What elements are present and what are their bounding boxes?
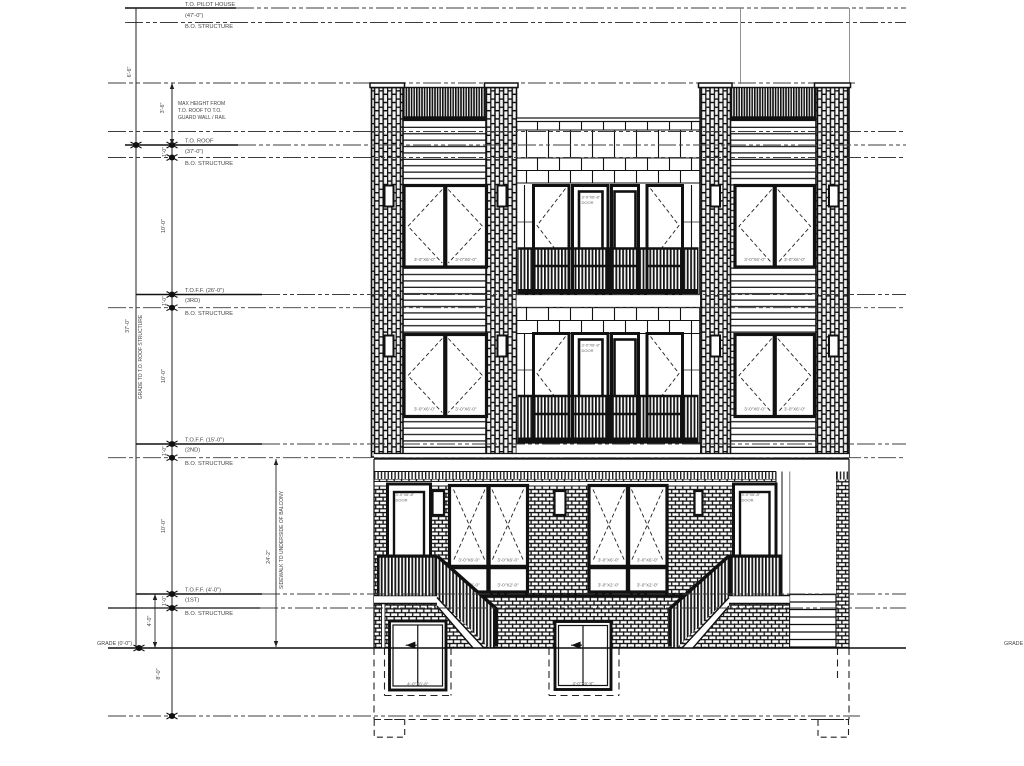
svg-text:10'-0": 10'-0": [161, 519, 167, 533]
svg-text:GUARD WALL / RAIL: GUARD WALL / RAIL: [178, 115, 226, 121]
svg-text:4'-0"X6'-8": 4'-0"X6'-8": [407, 682, 429, 687]
svg-text:DOOR: DOOR: [582, 200, 594, 205]
svg-text:3'-0"X6'-8": 3'-0"X6'-8": [742, 492, 761, 497]
svg-text:(2ND): (2ND): [185, 448, 200, 454]
svg-text:1'-0": 1'-0": [162, 296, 168, 306]
svg-text:GRADE (0'-0"): GRADE (0'-0"): [1004, 641, 1024, 647]
svg-text:3'-0"X6'-0": 3'-0"X6'-0": [744, 407, 766, 412]
svg-text:8'-0": 8'-0": [156, 668, 162, 679]
svg-text:T.O.F.F. (4'-0"): T.O.F.F. (4'-0"): [185, 588, 221, 594]
svg-text:3'-0"X2'-0": 3'-0"X2'-0": [598, 583, 620, 588]
svg-text:MAX HEIGHT FROM: MAX HEIGHT FROM: [178, 101, 225, 107]
svg-text:3'-0"X6'-0": 3'-0"X6'-0": [598, 558, 620, 563]
svg-text:6'-6": 6'-6": [127, 67, 133, 78]
svg-text:SIDEWALK TO UNDERSIDE OF BALCO: SIDEWALK TO UNDERSIDE OF BALCONY: [279, 490, 285, 589]
svg-text:3'-0"X6'-8": 3'-0"X6'-8": [396, 492, 415, 497]
svg-text:3'-0"X6'-0": 3'-0"X6'-0": [455, 407, 477, 412]
svg-text:GRADE TO T.O. ROOF STRUCTURE: GRADE TO T.O. ROOF STRUCTURE: [138, 314, 144, 399]
svg-text:3'-0"X6'-0": 3'-0"X6'-0": [455, 257, 477, 262]
svg-text:4'-0"X6'-8": 4'-0"X6'-8": [572, 681, 594, 686]
svg-text:3'-0"X6'-0": 3'-0"X6'-0": [784, 407, 806, 412]
svg-text:(3RD): (3RD): [185, 298, 200, 304]
svg-text:10'-0": 10'-0": [161, 369, 167, 383]
svg-text:10'-0": 10'-0": [161, 219, 167, 233]
svg-text:T.O. ROOF TO T.O.: T.O. ROOF TO T.O.: [178, 108, 222, 114]
svg-text:3'-0"X2'-0": 3'-0"X2'-0": [637, 583, 659, 588]
svg-text:DOOR: DOOR: [582, 348, 594, 353]
svg-text:3'-0"X6'-8": 3'-0"X6'-8": [582, 195, 601, 200]
svg-text:3'-0"X6'-0": 3'-0"X6'-0": [744, 257, 766, 262]
svg-text:24'-2": 24'-2": [266, 550, 272, 564]
svg-text:DOOR: DOOR: [742, 498, 754, 503]
svg-text:3'-0"X6'-0": 3'-0"X6'-0": [637, 558, 659, 563]
svg-text:B.O. STRUCTURE: B.O. STRUCTURE: [185, 161, 233, 167]
svg-text:B.O. STRUCTURE: B.O. STRUCTURE: [185, 461, 233, 467]
svg-text:(47'-0"): (47'-0"): [185, 13, 203, 19]
svg-text:3'-0"X6'-0": 3'-0"X6'-0": [414, 257, 436, 262]
svg-text:B.O. STRUCTURE: B.O. STRUCTURE: [185, 311, 233, 317]
svg-text:3'-0"X6'-0": 3'-0"X6'-0": [497, 558, 519, 563]
svg-text:T.O. PILOT HOUSE: T.O. PILOT HOUSE: [185, 2, 235, 8]
svg-text:GRADE (0'-0"): GRADE (0'-0"): [97, 641, 132, 647]
svg-text:3'-0"X2'-0": 3'-0"X2'-0": [497, 583, 519, 588]
svg-text:4'-0": 4'-0": [147, 616, 153, 627]
svg-text:B.O. STRUCTURE: B.O. STRUCTURE: [185, 611, 233, 617]
svg-text:37'-0": 37'-0": [125, 319, 131, 333]
svg-text:1'-0": 1'-0": [162, 596, 168, 606]
svg-text:1'-0": 1'-0": [162, 147, 168, 157]
svg-text:DOOR: DOOR: [396, 498, 408, 503]
svg-text:3'-0"X6'-0": 3'-0"X6'-0": [784, 257, 806, 262]
svg-text:3'-0"X6'-0": 3'-0"X6'-0": [414, 407, 436, 412]
svg-text:3'-6": 3'-6": [160, 103, 166, 114]
svg-text:1'-0": 1'-0": [162, 446, 168, 456]
svg-text:3'-0"X6'-8": 3'-0"X6'-8": [582, 343, 601, 348]
svg-text:(1ST): (1ST): [185, 598, 199, 604]
svg-text:T.O.F.F. (26'-0"): T.O.F.F. (26'-0"): [185, 288, 224, 294]
svg-text:B.O. STRUCTURE: B.O. STRUCTURE: [185, 24, 233, 30]
svg-text:T.O.F.F. (15'-0"): T.O.F.F. (15'-0"): [185, 438, 224, 444]
svg-text:(37'-0"): (37'-0"): [185, 149, 203, 155]
svg-text:T.O. ROOF: T.O. ROOF: [185, 139, 214, 145]
svg-text:3'-0"X6'-0": 3'-0"X6'-0": [458, 558, 480, 563]
